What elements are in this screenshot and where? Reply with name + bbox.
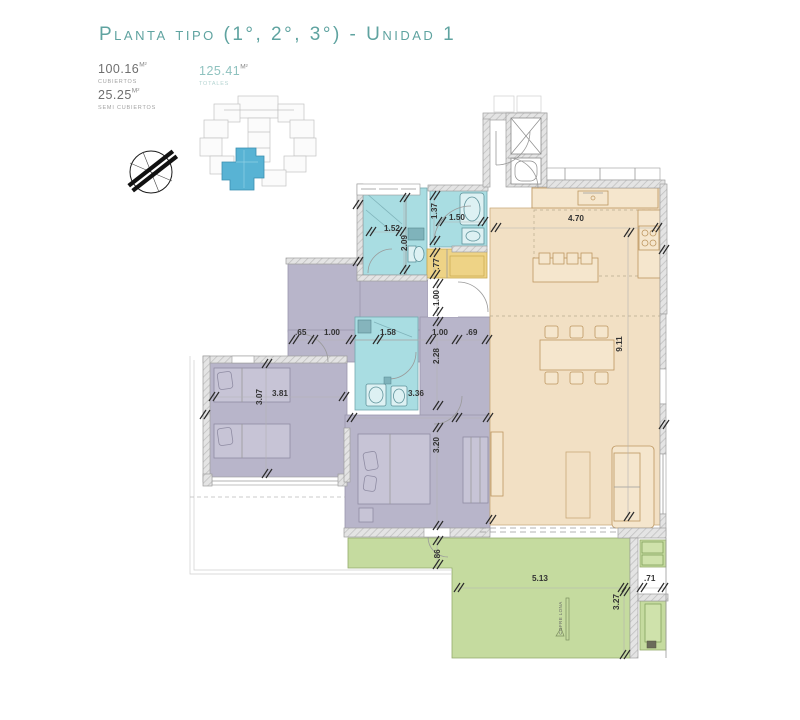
dim-living-depth: 9.11 [615,336,624,352]
floorplan-sheet: Planta tipo (1°, 2°, 3°) - Unidad 1 100.… [0,0,800,720]
dim-bed2-width: 3.36 [408,389,424,398]
dim-bed1-depth: 3.07 [255,389,264,405]
dim-bed2-depth: 3.20 [432,437,441,453]
dim-seg-69: .69 [466,328,478,337]
dim-bath1-depth: 2.09 [400,235,409,251]
dim-terrace2-depth: 3.27 [612,594,621,610]
dim-laundry: .77 [432,258,441,270]
dim-kitchen-width: 4.70 [568,214,584,223]
key-plan [200,96,316,190]
spec-label-box [357,184,420,195]
wardrobe [463,437,488,503]
dim-hall-depth: 1.00 [432,290,441,306]
dim-bath3-width: 1.58 [380,328,396,337]
dim-terrace2-width: .71 [644,574,656,583]
dim-seg-100a: 1.00 [324,328,340,337]
dim-bath2-width: 1.50 [449,213,465,222]
dim-seg-65: .65 [295,328,307,337]
floorplan-drawing: 1.52 2.09 1.37 1.50 4.70 .77 1.00 .65 1.… [0,0,800,720]
north-arrow-icon [127,150,178,193]
dim-bed1-width: 3.81 [272,389,288,398]
dim-terrace-width: 5.13 [532,574,548,583]
dim-bath3-depth: 2.28 [432,348,441,364]
dim-terrace-depth: .86 [433,549,442,561]
dim-bath2-depth: 1.37 [430,203,439,219]
dim-bath1-width: 1.52 [384,224,400,233]
stove-icon [639,226,659,250]
dim-seg-100b: 1.00 [432,328,448,337]
awning-label: COFRE LONA [558,601,563,634]
dining-furniture [540,326,614,384]
